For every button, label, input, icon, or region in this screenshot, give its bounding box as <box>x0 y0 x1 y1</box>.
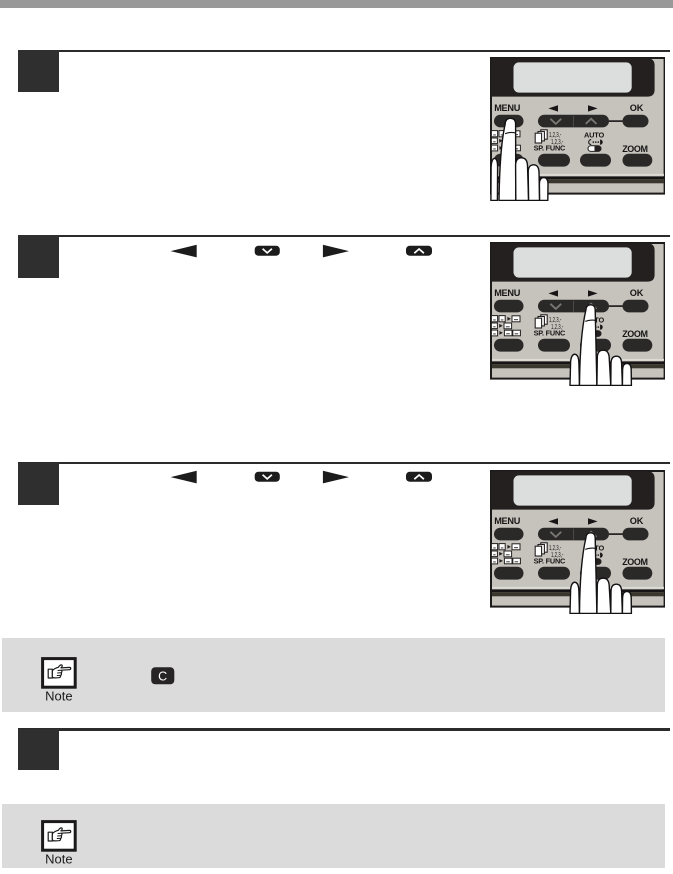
svg-text:C: C <box>158 669 167 683</box>
